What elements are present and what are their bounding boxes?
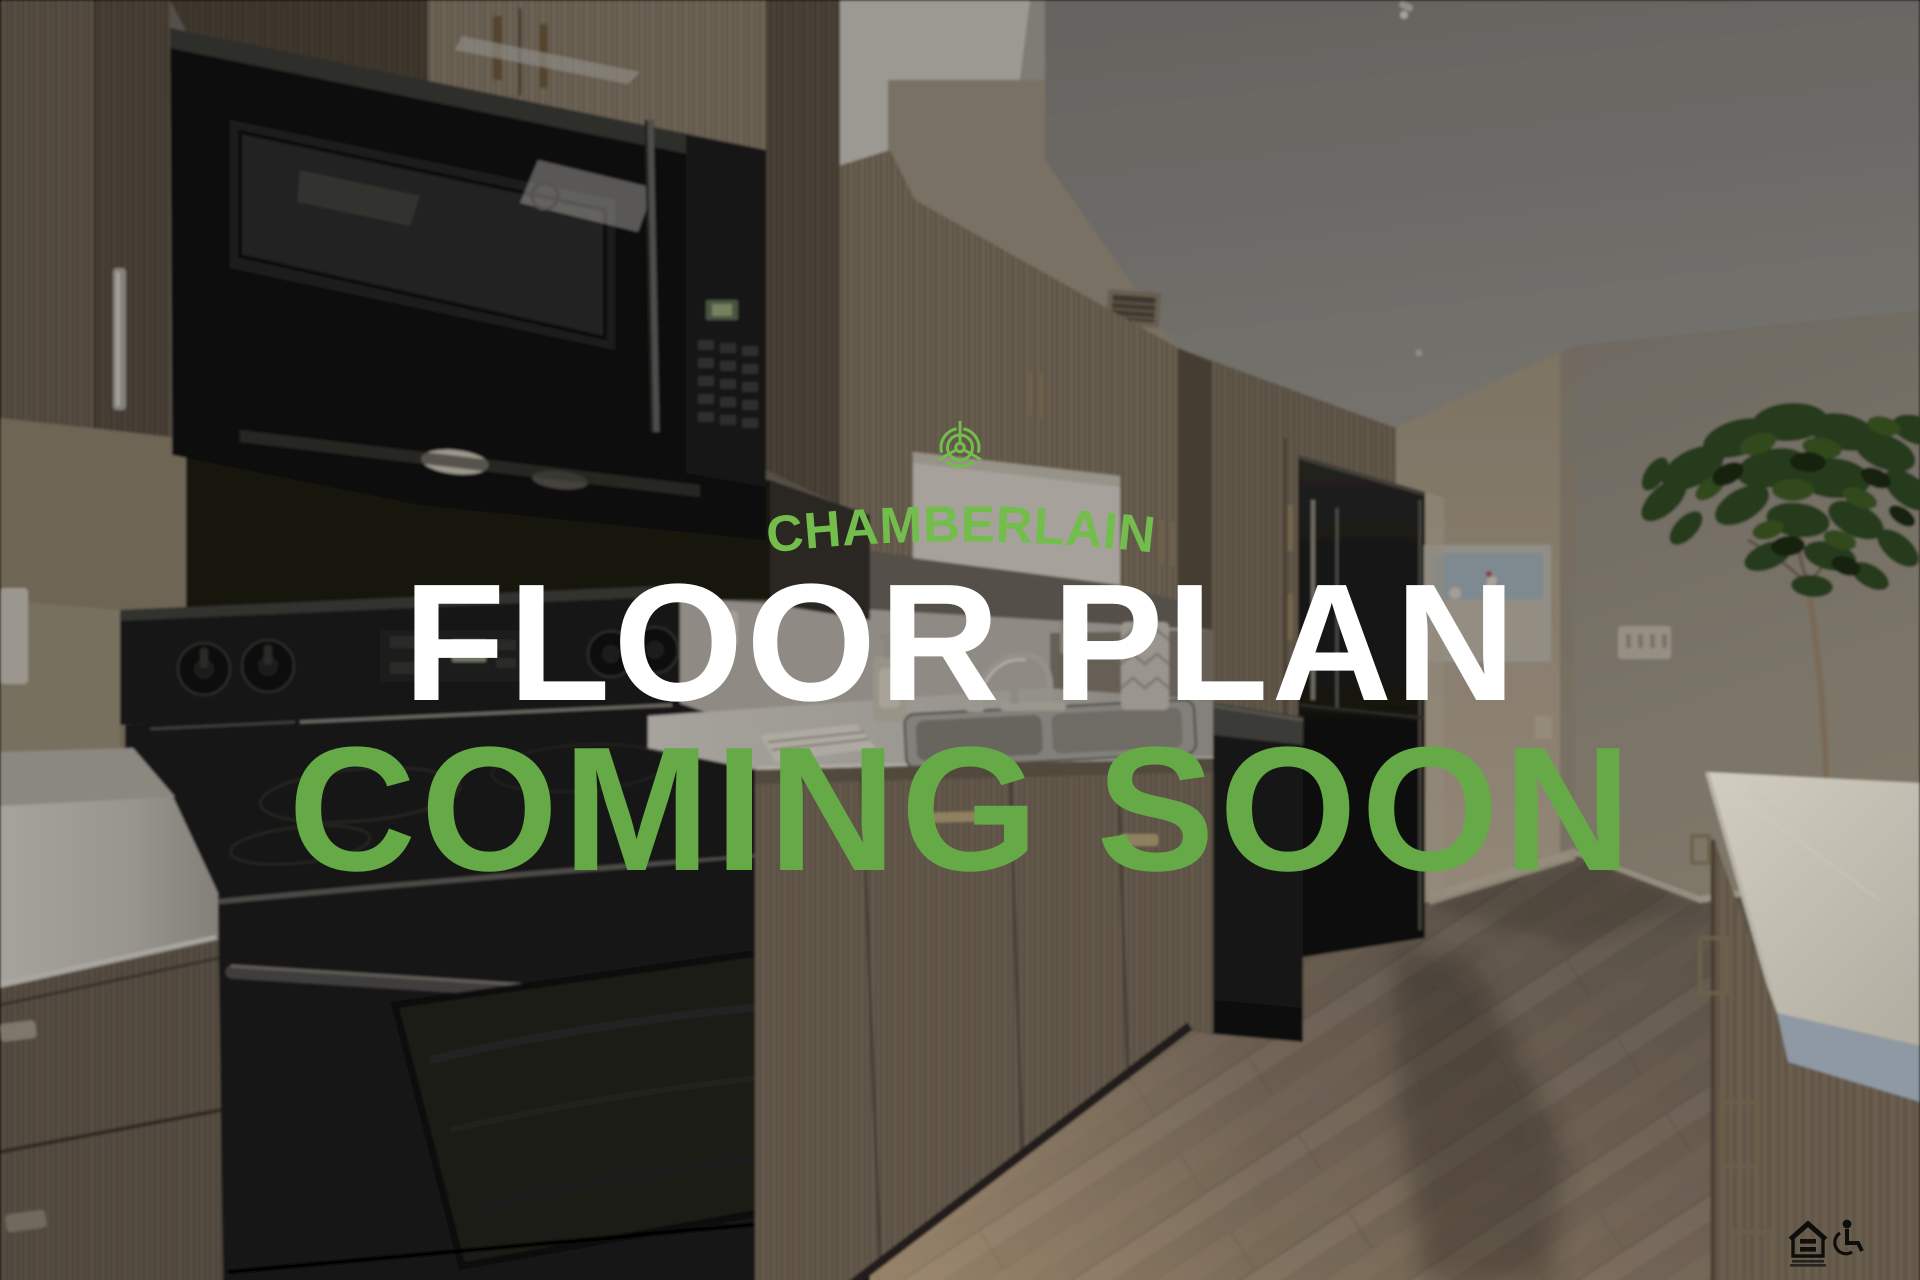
svg-text:COMING SOON: COMING SOON — [288, 710, 1636, 908]
svg-text:FLOOR PLAN: FLOOR PLAN — [403, 550, 1518, 736]
